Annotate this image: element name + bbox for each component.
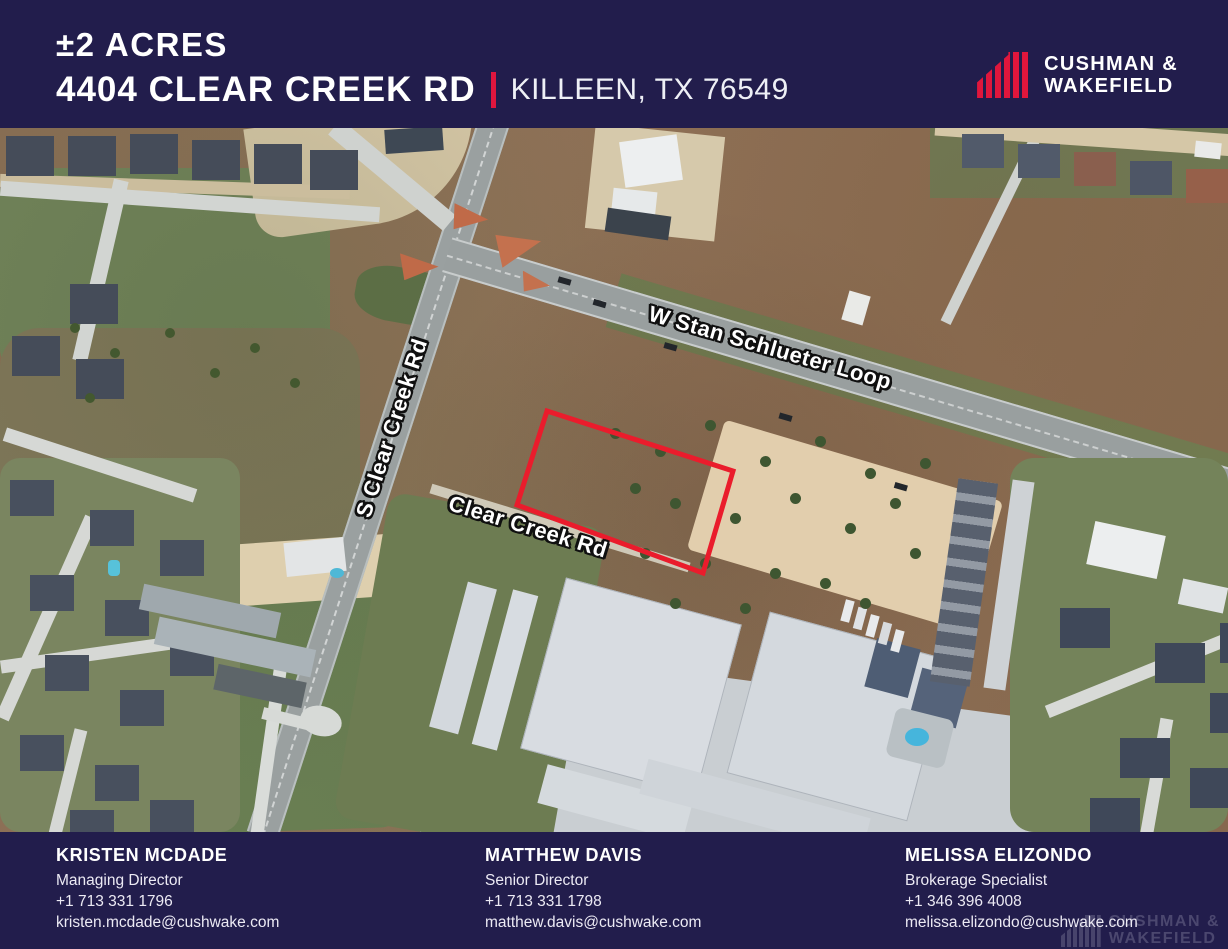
flyer-page: ±2 ACRES 4404 CLEAR CREEK RD KILLEEN, TX… <box>0 0 1228 949</box>
city-text: KILLEEN, TX 76549 <box>511 73 789 107</box>
building-logo-icon <box>977 52 1031 98</box>
logo-line2: WAKEFIELD <box>1044 75 1178 97</box>
contact-phone: +1 713 331 1798 <box>485 891 701 912</box>
header-band: ±2 ACRES 4404 CLEAR CREEK RD KILLEEN, TX… <box>0 0 1228 128</box>
cushman-wakefield-logo: CUSHMAN & WAKEFIELD <box>977 52 1178 98</box>
contact-card: MATTHEW DAVIS Senior Director +1 713 331… <box>485 845 701 933</box>
contact-title: Brokerage Specialist <box>905 870 1138 891</box>
title-block: ±2 ACRES 4404 CLEAR CREEK RD KILLEEN, TX… <box>56 26 789 110</box>
parcel-outline-layer <box>0 128 1228 832</box>
contact-email: kristen.mcdade@cushwake.com <box>56 912 279 933</box>
logo-wordmark: CUSHMAN & WAKEFIELD <box>1044 53 1178 97</box>
contact-title: Senior Director <box>485 870 701 891</box>
contact-phone: +1 346 396 4008 <box>905 891 1138 912</box>
contact-email: matthew.davis@cushwake.com <box>485 912 701 933</box>
parcel-boundary <box>517 411 733 573</box>
address-text: 4404 CLEAR CREEK RD <box>56 70 476 110</box>
aerial-map: W Stan Schlueter Loop S Clear Creek Rd C… <box>0 128 1228 832</box>
acreage-title: ±2 ACRES <box>56 26 789 64</box>
red-divider <box>491 72 496 108</box>
logo-line1: CUSHMAN & <box>1044 53 1178 75</box>
contact-name: KRISTEN MCDADE <box>56 845 279 866</box>
address-line: 4404 CLEAR CREEK RD KILLEEN, TX 76549 <box>56 70 789 110</box>
contact-card: MELISSA ELIZONDO Brokerage Specialist +1… <box>905 845 1138 933</box>
contact-phone: +1 713 331 1796 <box>56 891 279 912</box>
contact-card: KRISTEN MCDADE Managing Director +1 713 … <box>56 845 279 933</box>
contact-title: Managing Director <box>56 870 279 891</box>
footer-band: CUSHMAN & WAKEFIELD KRISTEN MCDADE Manag… <box>0 832 1228 949</box>
contact-name: MELISSA ELIZONDO <box>905 845 1138 866</box>
contact-email: melissa.elizondo@cushwake.com <box>905 912 1138 933</box>
contact-name: MATTHEW DAVIS <box>485 845 701 866</box>
